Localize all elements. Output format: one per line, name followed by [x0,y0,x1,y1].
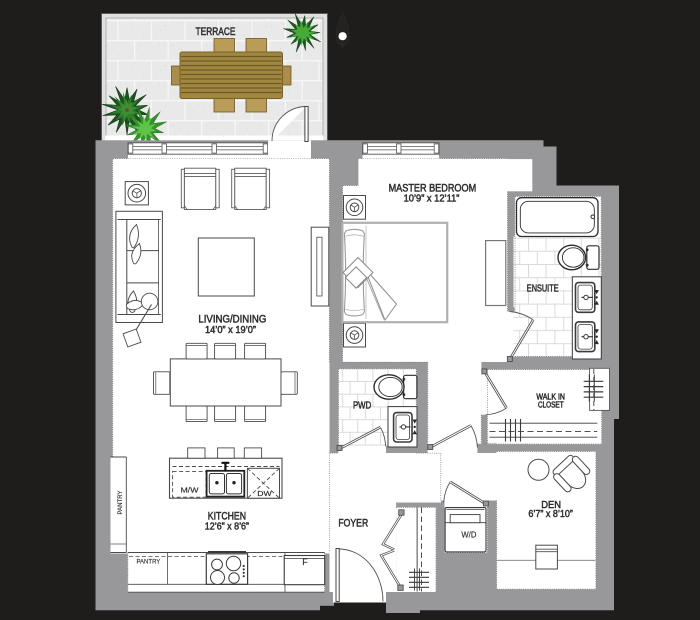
svg-text:12’6” x 8’6”: 12’6” x 8’6” [205,522,249,533]
svg-text:F: F [302,557,308,567]
svg-text:PANTRY: PANTRY [137,559,161,566]
svg-text:PWD: PWD [353,400,371,411]
svg-text:KITCHEN: KITCHEN [208,511,246,523]
svg-text:ENSUITE: ENSUITE [527,283,559,294]
svg-text:FOYER: FOYER [338,517,368,529]
svg-text:DW: DW [257,491,272,498]
svg-text:M/W: M/W [181,488,199,495]
svg-text:CLOSET: CLOSET [538,401,564,410]
svg-text:6’7” x 8’10”: 6’7” x 8’10” [528,509,573,520]
svg-text:TERRACE: TERRACE [196,26,236,38]
svg-text:10’9” x 12’11”: 10’9” x 12’11” [404,193,460,204]
svg-text:14’0” x 19’0”: 14’0” x 19’0” [205,325,256,336]
svg-text:W/D: W/D [461,530,476,539]
svg-text:LIVING/DINING: LIVING/DINING [198,314,266,326]
svg-text:PANTRY: PANTRY [117,490,124,515]
